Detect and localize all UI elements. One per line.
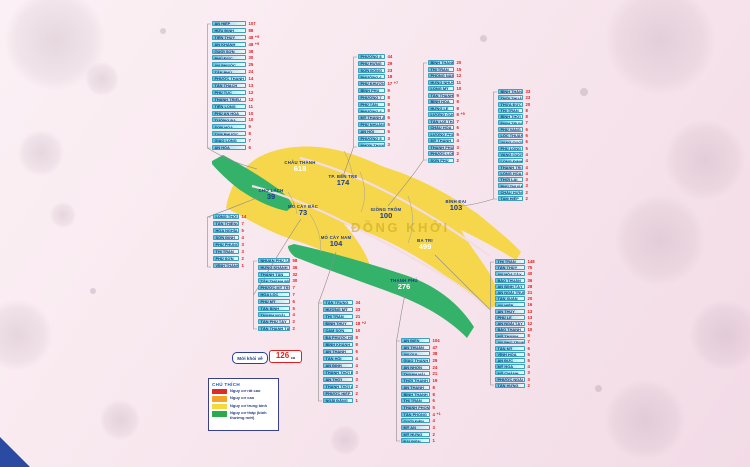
commune-name: LONG ĐỊNH <box>498 158 523 163</box>
commune-case-count: 47 <box>433 345 438 350</box>
commune-name: PHƯỜNG 6 <box>358 74 385 79</box>
commune-row: PHƯỚC HIỆP2 <box>323 391 366 398</box>
commune-row: PHƯỜNG 618 <box>358 74 398 81</box>
commune-case-count: 21 <box>433 371 438 376</box>
commune-case-count: 4 <box>433 412 435 417</box>
risk-color-swatch <box>212 396 227 402</box>
commune-case-count: 6 <box>526 127 528 132</box>
commune-name: AN THẠNH <box>401 385 430 390</box>
commune-name: TÂN PHÚ <box>212 69 246 74</box>
commune-row: TÂN PHONG4+1 <box>401 412 441 419</box>
commune-case-count: 4 <box>526 171 528 176</box>
commune-name: PHƯỜNG 8 <box>358 54 385 59</box>
commune-row: THÀNH TRIỆU12 <box>212 97 259 104</box>
commune-case-count: 3 <box>526 177 528 182</box>
risk-label: Nguy cơ cao <box>230 396 275 401</box>
commune-row: VĨNH THÀNH1 <box>213 263 248 270</box>
recovered-unit: ca <box>291 355 295 362</box>
commune-name: THỊ TRẤN <box>495 259 525 264</box>
district-label-binh-dai: BÌNH ĐẠI 103 <box>445 199 466 212</box>
legend: CHÚ THÍCH Nguy cơ rất cao Nguy cơ cao Ng… <box>208 378 279 431</box>
commune-row: HƯNG KHÁNH TRUNG A36 <box>258 265 299 272</box>
district-label-ba-tri: BA TRI 499 <box>417 238 433 251</box>
commune-case-count: 10 <box>249 117 254 122</box>
commune-name: THỚI THUẬN <box>498 95 523 100</box>
commune-case-count: 6 <box>526 133 528 138</box>
risk-color-swatch <box>212 411 227 417</box>
commune-name: PHONG NẪM <box>428 73 454 78</box>
commune-case-count: 13 <box>249 83 254 88</box>
commune-case-count: 3 <box>528 377 530 382</box>
commune-case-count: 32 <box>293 272 298 277</box>
commune-case-count: 18 <box>388 74 393 79</box>
commune-case-count: 30 <box>293 278 298 283</box>
commune-case-count: 4 <box>293 312 295 317</box>
risk-label: Nguy cơ rất cao <box>230 389 275 394</box>
commune-case-count: 33 <box>526 89 531 94</box>
commune-case-count: 21 <box>356 314 361 319</box>
commune-name: BÌNH THẮNG <box>498 89 523 94</box>
district-label-cho-lach: CHỢ LÁCH 39 <box>259 188 284 201</box>
recovered-value-box: 126 ca <box>269 350 302 363</box>
commune-name: PHƯỚC THẠNH <box>212 76 246 81</box>
commune-row: TÂN THÀNH BÌNH30 <box>258 278 299 285</box>
commune-case-count: 7 <box>293 285 295 290</box>
commune-name: THỊ TRẤN <box>323 314 353 319</box>
commune-name: TÂN THÀNH BÌNH <box>258 278 290 283</box>
commune-name: NHƠN THẠNH <box>358 142 385 147</box>
commune-name: PHÚ AN HÒA <box>212 111 246 116</box>
commune-case-count: 2 <box>433 432 435 437</box>
commune-case-count: 38 <box>249 49 254 54</box>
commune-case-count: 8 <box>388 108 390 113</box>
commune-name: TÂN HỘI <box>323 356 353 361</box>
commune-case-count: 5 <box>526 146 528 151</box>
district-label-giong-trom: GIỒNG TRÔM 100 <box>371 207 402 220</box>
commune-row: TÂN TRUNG34 <box>323 300 366 307</box>
commune-list-ba-tri: THỊ TRẤN148TÂN THỦY75AN HÒA TÂY40BẢO THU… <box>495 259 536 389</box>
commune-name: AN HÒA TÂY <box>495 271 525 276</box>
commune-case-count: 38 <box>433 351 438 356</box>
commune-row: ĐỊNH THỦY18+2 <box>323 321 366 328</box>
commune-name: TÂN THỦY <box>495 265 525 270</box>
commune-name: THANH TÂN <box>258 272 290 277</box>
commune-row: PHÚ AN HÒA10 <box>212 111 259 118</box>
commune-case-count: 3 <box>528 370 530 375</box>
commune-case-count: 8 <box>433 385 435 390</box>
commune-name: VĨNH HÒA <box>495 352 525 357</box>
commune-name: PHƯỜNG 5 <box>358 136 385 141</box>
commune-name: PHƯỚC HIỆP <box>323 391 353 396</box>
commune-case-count: 1 <box>242 263 244 268</box>
commune-case-count: 40 <box>528 271 533 276</box>
commune-case-count: 17 <box>388 81 393 86</box>
commune-name: VANG QUỚI ĐÔNG <box>498 152 523 157</box>
legend-item: Nguy cơ trung bình <box>212 404 275 410</box>
commune-name: SƠN ĐỊNH <box>213 235 239 240</box>
commune-name: BẢO THUẬN <box>495 278 525 283</box>
commune-name: TÂN MỸ <box>495 346 525 351</box>
commune-row: AN HỘI5 <box>358 129 398 136</box>
commune-row: NHUẬN PHÚ TÂN58 <box>258 258 299 265</box>
commune-name: PHÚ HƯNG <box>358 61 385 66</box>
commune-name: MỸ AN <box>401 425 430 430</box>
commune-row: PHƯỚC THẠNH14 <box>212 76 259 83</box>
commune-case-count: 2 <box>457 151 459 156</box>
commune-name: THÀNH THỚI B <box>323 370 353 375</box>
commune-case-count: 4 <box>528 364 530 369</box>
commune-name: BÌNH THỚI <box>498 114 523 119</box>
commune-row: AN ĐIỀN104 <box>401 338 441 345</box>
commune-name: THÀNH THỚI A <box>323 384 353 389</box>
commune-row: TÂN THANH TÂY2 <box>258 326 299 333</box>
commune-case-count: 4 <box>242 235 244 240</box>
commune-name: AN ĐIỀN <box>401 338 430 343</box>
commune-name: BÌNH THÀNH <box>428 60 454 65</box>
commune-row: AN THUẬN47 <box>401 345 441 352</box>
commune-case-count: 8 <box>526 108 528 113</box>
commune-case-count: 24 <box>249 69 254 74</box>
commune-row: TAM PHƯỚC8 <box>212 131 259 138</box>
commune-case-count: 2 <box>528 383 530 388</box>
commune-row: TAM HIỆP2 <box>498 196 532 202</box>
commune-case-count: 19 <box>433 378 438 383</box>
commune-row: PHÚ TÚC12 <box>212 90 259 97</box>
commune-case-count: 23 <box>388 68 393 73</box>
commune-row: SƠN HÒA9 <box>212 124 259 131</box>
commune-name: THẠNH TRỊ <box>498 165 523 170</box>
commune-name: HƯNG NHƯỢNG <box>428 80 454 85</box>
commune-case-count: 107 <box>249 21 256 26</box>
commune-case-count: 6 <box>293 299 295 304</box>
commune-name: TÂN PHONG <box>401 412 430 417</box>
commune-case-count: 48 <box>249 35 254 40</box>
commune-list-giong-trom: BÌNH THÀNH20THỊ TRẤN15PHONG NẪM12HƯNG NH… <box>428 60 465 164</box>
commune-row: PHÚ HƯNG29 <box>358 61 398 68</box>
commune-name: AN ĐỊNH <box>323 363 353 368</box>
commune-case-count: 3 <box>526 183 528 188</box>
commune-case-count: 36 <box>293 265 298 270</box>
commune-list-mo-cay-bac: NHUẬN PHÚ TÂN58HƯNG KHÁNH TRUNG A36THANH… <box>258 258 299 333</box>
commune-case-count: 15 <box>457 67 462 72</box>
commune-name: LONG HÒA <box>498 171 523 176</box>
commune-row: TÂN HỘI4 <box>323 356 366 363</box>
commune-extra-count: +2 <box>362 321 366 326</box>
commune-name: TÂN THẠCH <box>212 83 246 88</box>
commune-row: LONG THỚI14 <box>213 214 248 221</box>
commune-name: BÌNH KHÁNH <box>323 342 353 347</box>
commune-case-count: 16 <box>528 302 533 307</box>
commune-name: TƯỜNG ĐA <box>212 117 246 122</box>
commune-name: ĐẠI ĐIỀN <box>401 438 430 443</box>
commune-row: TÂN THẠCH13 <box>212 83 259 90</box>
commune-case-count: 2 <box>293 319 295 324</box>
commune-case-count: 8 <box>526 114 528 119</box>
commune-row: TÂN PHÚ24 <box>212 69 259 76</box>
commune-extra-count: +5 <box>460 112 464 117</box>
commune-case-count: 8 <box>388 102 390 107</box>
commune-name: PHÚ SƠN <box>213 256 239 261</box>
commune-case-count: 5 <box>433 405 435 410</box>
commune-name: THỚI LAI <box>498 177 523 182</box>
commune-name: AN NGÃI TÂY <box>495 321 525 326</box>
commune-name: AN QUI <box>401 351 430 356</box>
commune-row: THẠNH NGÃI4 <box>258 312 299 319</box>
legend-item: Nguy cơ cao <box>212 396 275 402</box>
commune-row: AN THẠNH6 <box>323 349 366 356</box>
commune-case-count: 11 <box>249 104 254 109</box>
commune-row: THỊ TRẤN6 <box>401 398 441 405</box>
commune-case-count: 24 <box>433 365 438 370</box>
commune-case-count: 13 <box>528 315 533 320</box>
commune-case-count: 10 <box>528 327 533 332</box>
commune-row: PHƯỜNG 48 <box>358 108 398 115</box>
commune-case-count: 20 <box>528 296 533 301</box>
commune-row: SƠN ĐÔNG23 <box>358 68 398 75</box>
commune-name: THỚI THẠNH <box>401 378 430 383</box>
district-label-chau-thanh: CHÂU THÀNH 618 <box>284 160 315 173</box>
commune-case-count: 28 <box>528 284 533 289</box>
commune-case-count: 58 <box>293 258 298 263</box>
commune-case-count: 10 <box>249 111 254 116</box>
commune-name: THÀNH TRIỆU <box>212 97 246 102</box>
commune-name: PHÚ VANG <box>498 127 523 132</box>
commune-case-count: 12 <box>249 90 254 95</box>
commune-case-count: 30 <box>249 55 254 60</box>
commune-name: THẠNH PHONG <box>401 405 430 410</box>
commune-case-count: 8 <box>457 106 459 111</box>
commune-name: MỸ THẠNH <box>428 138 454 143</box>
commune-case-count: 6 <box>356 349 358 354</box>
commune-row: PHÚ TÂN8 <box>358 102 398 109</box>
commune-row: AN QUI38 <box>401 351 441 358</box>
commune-case-count: 10 <box>356 328 361 333</box>
commune-list-tp-ben-tre: PHƯỜNG 844PHÚ HƯNG29SƠN ĐÔNG23PHƯỜNG 618… <box>358 54 398 149</box>
commune-row: HỮU ĐỊNH88 <box>212 28 259 35</box>
commune-row: HƯƠNG MỸ23 <box>323 307 366 314</box>
commune-row: SƠN ĐỊNH4 <box>213 235 248 242</box>
commune-row: PHƯỜNG 78 <box>358 95 398 102</box>
commune-row: PHÚ PHỤNG3 <box>213 242 248 249</box>
commune-case-count: 2 <box>526 190 528 195</box>
commune-row: TIÊN THỦY48+9 <box>212 35 259 42</box>
commune-name: MỸ CHÁNH <box>495 370 525 375</box>
commune-row: THÀNH THỚI B3 <box>323 370 366 377</box>
commune-list-thanh-phu: AN ĐIỀN104AN THUẬN47AN QUI38GIAO THẠNH29… <box>401 338 441 445</box>
commune-case-count: 5 <box>528 352 530 357</box>
commune-case-count: 8 <box>356 342 358 347</box>
commune-name: AN THUẬN <box>401 345 430 350</box>
commune-row: THỚI THẠNH19 <box>401 378 441 385</box>
commune-row: BÌNH THẠNH8 <box>401 392 441 399</box>
commune-name: PHÚ TÂN <box>358 102 385 107</box>
commune-case-count: 1 <box>356 398 358 403</box>
commune-name: MỸ HÒA <box>495 364 525 369</box>
risk-color-swatch <box>212 389 227 395</box>
commune-extra-count: +7 <box>394 81 398 86</box>
commune-case-count: 29 <box>433 358 438 363</box>
commune-row: PHÚ ĐỨC30 <box>212 55 259 62</box>
commune-name: HÒA LỘC <box>258 292 290 297</box>
commune-name: ĐỊNH THỦY <box>323 321 353 326</box>
commune-case-count: 20 <box>457 60 462 65</box>
commune-name: TÂN TRUNG <box>323 300 353 305</box>
commune-name: GIAO THẠNH <box>401 358 430 363</box>
commune-case-count: 8 <box>388 95 390 100</box>
commune-row: THỊ TRẤN3 <box>213 249 248 256</box>
commune-row: AN HIỆP107 <box>212 21 259 28</box>
commune-name: MỸ HƯNG <box>401 432 430 437</box>
commune-name: BẢO THẠNH <box>495 327 525 332</box>
commune-name: THỊ TRẤN <box>401 398 430 403</box>
commune-name: CHÂU HƯNG <box>498 190 523 195</box>
commune-name: PHÚ LỄ <box>495 315 525 320</box>
commune-name: VĨNH THÀNH <box>213 263 239 268</box>
commune-row: CẨM SƠN10 <box>323 328 366 335</box>
commune-case-count: 5 <box>293 306 295 311</box>
commune-case-count: 8 <box>457 112 459 117</box>
commune-name: THẠNH HẢI <box>401 371 430 376</box>
commune-name: PHÚ MỸ <box>258 299 290 304</box>
commune-row: GIAO LONG7 <box>212 138 259 145</box>
commune-name: AN BÌNH TÂY <box>495 284 525 289</box>
recovered-label: Mới khỏi về <box>232 352 268 364</box>
commune-row: BÌNH KHÁNH8 <box>323 342 366 349</box>
commune-name: AN HÓA <box>212 145 246 150</box>
commune-name: BÌNH PHÚ <box>358 88 385 93</box>
commune-case-count: 12 <box>457 73 462 78</box>
commune-case-count: 2 <box>457 158 459 163</box>
commune-case-count: 104 <box>433 338 440 343</box>
commune-name: QUỚI SƠN <box>212 49 246 54</box>
legend-item: Nguy cơ thấp (bình thường mới) <box>212 411 275 420</box>
commune-name: AN NHƠN <box>401 365 430 370</box>
commune-row: MỸ THẠNH AN6 <box>358 115 398 122</box>
commune-case-count: 29 <box>388 61 393 66</box>
commune-name: THỪA ĐỨC <box>498 102 523 107</box>
commune-case-count: 2 <box>356 391 358 396</box>
commune-name: AN KHÁNH <box>212 42 246 47</box>
commune-name: BÌNH THẠNH <box>401 392 430 397</box>
commune-name: HƯƠNG MỸ <box>323 307 353 312</box>
commune-row: BÌNH PHÚ9 <box>358 88 398 95</box>
commune-case-count: 12 <box>249 97 254 102</box>
commune-case-count: 75 <box>528 265 533 270</box>
legend-item: Nguy cơ rất cao <box>212 389 275 395</box>
commune-case-count: 8 <box>528 333 530 338</box>
commune-row: AN ĐỊNH4 <box>323 363 366 370</box>
commune-name: PHÚ LONG <box>498 146 523 151</box>
commune-row: PHƯỜNG 844 <box>358 54 398 61</box>
commune-case-count: 7 <box>528 339 530 344</box>
commune-name: MỸ THẠNH AN <box>358 115 385 120</box>
province-watermark: ĐỒNG KHỞI <box>351 220 450 235</box>
commune-case-count: 7 <box>293 292 295 297</box>
commune-case-count: 8 <box>356 335 358 340</box>
commune-case-count: 18 <box>356 321 361 326</box>
commune-case-count: 148 <box>528 259 535 264</box>
commune-name: THẠNH PHÚ ĐÔNG <box>428 145 454 150</box>
commune-name: TIÊN LONG <box>212 104 246 109</box>
commune-case-count: 5 <box>242 228 244 233</box>
commune-name: LONG MỸ <box>428 86 454 91</box>
commune-name: NGÃI ĐĂNG <box>323 398 353 403</box>
district-label-thanh-phu: THẠNH PHÚ 276 <box>390 278 418 291</box>
commune-case-count: 7 <box>457 119 459 124</box>
commune-name: PHƯỚC NGÃI <box>495 377 525 382</box>
commune-case-count: 3 <box>457 145 459 150</box>
covid-risk-map-infographic: ĐỒNG KHỞI CHÂU THÀNH 618 TP. BẾN TRE 174… <box>0 0 750 467</box>
commune-name: TAM HIỆP <box>498 196 523 201</box>
commune-case-count: 34 <box>356 300 361 305</box>
commune-name: LONG THỚI <box>213 214 239 219</box>
commune-row: AN PHƯỚC25 <box>212 62 259 69</box>
commune-case-count: 5 <box>457 132 459 137</box>
commune-name: CHÂU HÒA <box>428 125 454 130</box>
commune-case-count: 10 <box>457 86 462 91</box>
commune-case-count: 6 <box>457 125 459 130</box>
legend-title: CHÚ THÍCH <box>212 382 275 387</box>
commune-name: CẨM SƠN <box>323 328 353 333</box>
commune-row: PHÚ NHUẬN5 <box>358 122 398 129</box>
commune-name: ĐỊNH TRUNG <box>498 120 523 125</box>
commune-case-count: 4 <box>433 418 435 423</box>
commune-row: TƯỜNG ĐA10 <box>212 117 259 124</box>
commune-case-count: 14 <box>249 76 254 81</box>
district-label-tp-ben-tre: TP. BẾN TRE 174 <box>329 174 358 187</box>
commune-case-count: 14 <box>242 214 247 219</box>
commune-case-count: 9 <box>457 93 459 98</box>
commune-row: TIÊN LONG11 <box>212 104 259 111</box>
commune-name: THỊ TRẤN <box>428 67 454 72</box>
commune-list-mo-cay-nam: TÂN TRUNG34HƯƠNG MỸ23THỊ TRẤN21ĐỊNH THỦY… <box>323 300 366 405</box>
commune-name: AN NGÃI TRUNG <box>495 290 525 295</box>
commune-name: HÒA NGHĨA <box>213 228 239 233</box>
commune-name: TÂN LỢI THẠNH <box>428 119 454 124</box>
legend-items: Nguy cơ rất cao Nguy cơ cao Nguy cơ trun… <box>212 389 275 421</box>
commune-name: AN HIỆP <box>495 302 525 307</box>
risk-label: Nguy cơ trung bình <box>230 404 275 409</box>
recovered-count: 126 <box>276 352 289 360</box>
commune-name: AN ĐỨC <box>495 358 525 363</box>
commune-extra-count: +1 <box>436 412 440 417</box>
commune-case-count: 20 <box>526 102 531 107</box>
commune-case-count: 5 <box>388 122 390 127</box>
commune-name: LƯƠNG QUỚI <box>428 112 454 117</box>
commune-case-count: 36 <box>528 278 533 283</box>
commune-row: PHƯỜNG 53 <box>358 136 398 143</box>
commune-case-count: 13 <box>528 309 533 314</box>
commune-name: SƠN HÒA <box>212 124 246 129</box>
commune-case-count: 8 <box>433 392 435 397</box>
district-label-mo-cay-nam: MỎ CÀY NAM 104 <box>321 235 352 248</box>
commune-name: AN THẠNH <box>323 349 353 354</box>
commune-row: TÂN THIỀNG7 <box>213 221 248 228</box>
commune-case-count: 2 <box>242 256 244 261</box>
commune-row: PHÚ MỸ6 <box>258 299 299 306</box>
commune-name: MỸ THẠNH <box>495 333 525 338</box>
commune-name: HƯNG KHÁNH TRUNG A <box>258 265 290 270</box>
commune-row: AN THỚI3 <box>323 377 366 384</box>
commune-case-count: 1 <box>433 438 435 443</box>
commune-case-count: 3 <box>242 249 244 254</box>
commune-case-count: 8 <box>457 99 459 104</box>
commune-name: PHƯỚC LONG <box>428 151 454 156</box>
commune-name: TÂN BÌNH <box>258 306 290 311</box>
commune-name: ĐA PHƯỚC HỘI <box>323 335 353 340</box>
commune-row: HÒA NGHĨA5 <box>213 228 248 235</box>
commune-name: PHÚ TÚC <box>212 90 246 95</box>
